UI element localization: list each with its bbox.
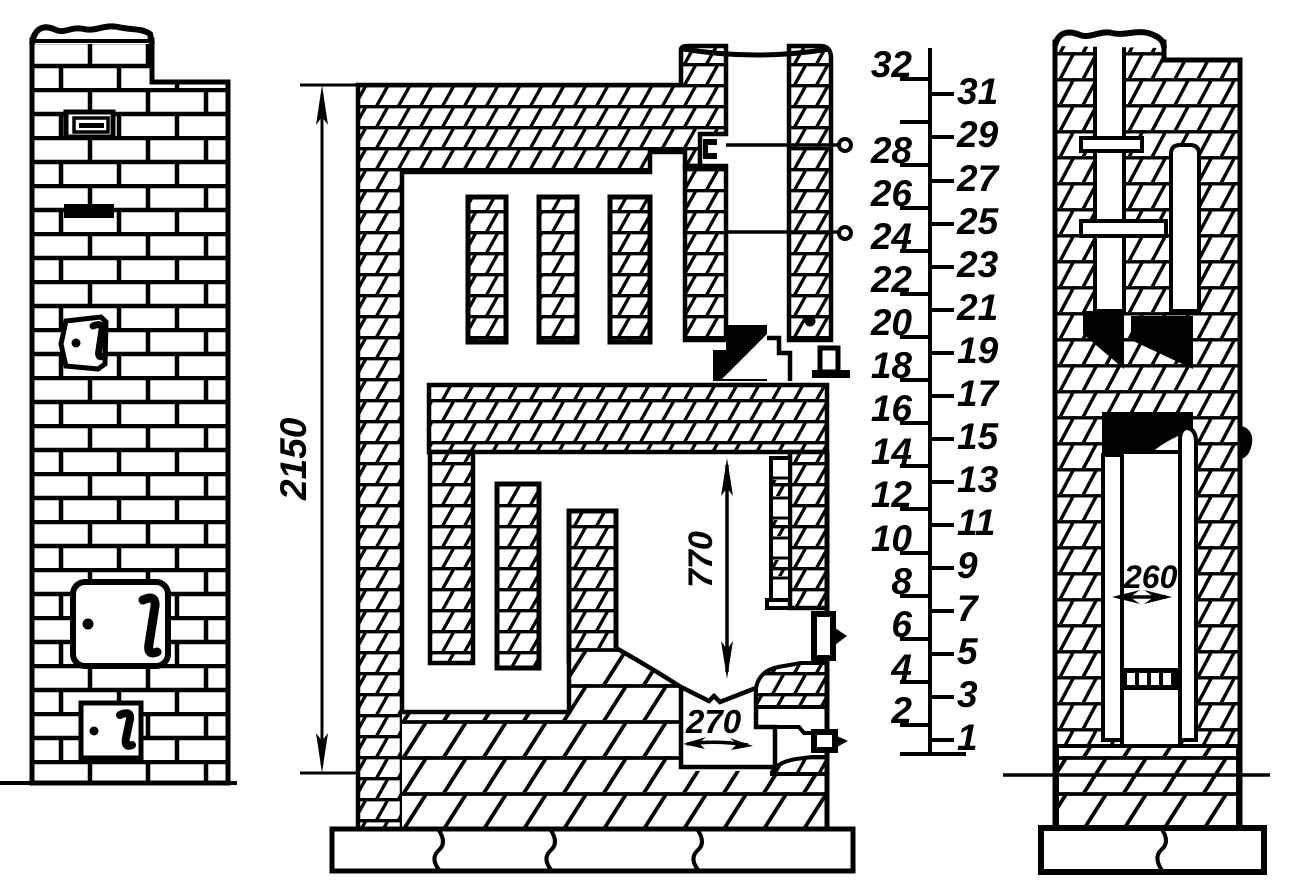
svg-text:22: 22	[870, 259, 913, 300]
svg-text:32: 32	[871, 44, 913, 85]
svg-text:260: 260	[1123, 559, 1178, 595]
svg-text:28: 28	[870, 130, 913, 171]
svg-text:3: 3	[957, 674, 978, 715]
svg-text:9: 9	[957, 545, 978, 586]
svg-text:17: 17	[957, 373, 1001, 414]
svg-text:270: 270	[685, 703, 742, 740]
svg-text:11: 11	[957, 502, 995, 543]
svg-text:31: 31	[957, 71, 998, 112]
svg-text:2150: 2150	[273, 417, 314, 501]
svg-text:20: 20	[870, 302, 913, 343]
svg-text:15: 15	[957, 416, 1000, 457]
svg-text:23: 23	[956, 244, 999, 285]
svg-text:13: 13	[957, 459, 999, 500]
svg-text:27: 27	[956, 158, 1001, 199]
svg-text:21: 21	[956, 287, 998, 328]
svg-text:19: 19	[957, 330, 999, 371]
svg-text:12: 12	[871, 474, 913, 515]
svg-text:2: 2	[890, 690, 912, 731]
svg-text:8: 8	[891, 561, 912, 602]
svg-text:16: 16	[871, 388, 913, 429]
svg-text:14: 14	[871, 431, 912, 472]
svg-text:25: 25	[956, 201, 1000, 242]
svg-text:6: 6	[891, 604, 912, 645]
svg-text:10: 10	[871, 518, 913, 559]
svg-text:29: 29	[956, 114, 999, 155]
svg-text:24: 24	[870, 216, 912, 257]
svg-text:1: 1	[957, 717, 978, 758]
svg-text:7: 7	[957, 588, 980, 629]
svg-text:18: 18	[871, 345, 913, 386]
svg-text:4: 4	[890, 647, 912, 688]
svg-text:770: 770	[682, 531, 720, 588]
svg-text:5: 5	[957, 631, 979, 672]
svg-text:26: 26	[870, 173, 913, 214]
